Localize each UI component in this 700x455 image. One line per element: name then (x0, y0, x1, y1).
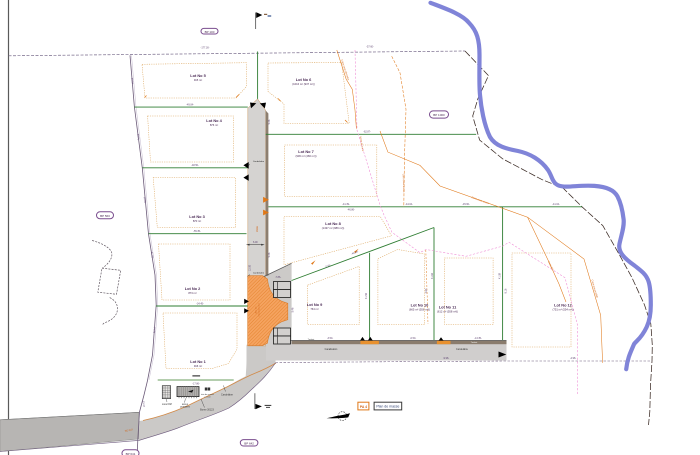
svg-text:41.02: 41.02 (150, 252, 154, 259)
svg-text:Lot No 6: Lot No 6 (296, 77, 312, 82)
svg-text:Borne 30123: Borne 30123 (200, 408, 214, 411)
svg-text:(665 m² (556 m²)): (665 m² (556 m²)) (409, 308, 430, 312)
svg-text:(1437 m² (989 m²)): (1437 m² (989 m²)) (322, 226, 345, 230)
svg-text:-57.60-: -57.60- (366, 46, 374, 49)
svg-text:Lot No 3: Lot No 3 (189, 214, 205, 219)
svg-text:5.46: 5.46 (268, 252, 271, 257)
svg-text:-46.86-: -46.86- (347, 209, 355, 212)
svg-text:74.75: 74.75 (152, 327, 156, 334)
svg-text:Lot No 4: Lot No 4 (206, 118, 222, 123)
svg-text:-4.98-: -4.98- (570, 357, 576, 360)
svg-text:41.09: 41.09 (498, 272, 501, 279)
svg-text:Lot No 2: Lot No 2 (185, 286, 201, 291)
svg-text:-34.45-: -34.45- (196, 302, 204, 305)
svg-text:764 m²: 764 m² (310, 307, 318, 311)
svg-text:-48.50-: -48.50- (191, 164, 199, 167)
svg-text:4.63: 4.63 (425, 288, 428, 293)
svg-text:-62.87-: -62.87- (363, 131, 371, 134)
svg-text:50.04: 50.04 (130, 78, 134, 85)
svg-text:Lot No 10: Lot No 10 (411, 303, 429, 308)
svg-text:65.91: 65.91 (143, 197, 147, 204)
svg-text:Candelabre: Candelabre (253, 271, 265, 274)
svg-text:Aire de: Aire de (255, 306, 258, 314)
svg-text:-41.39-: -41.39- (342, 203, 350, 206)
svg-text:12.00: 12.00 (249, 264, 252, 271)
svg-text:retournement: retournement (258, 303, 261, 316)
svg-text:Lot No 9: Lot No 9 (307, 302, 323, 307)
svg-text:-17.86-: -17.86- (192, 383, 200, 386)
svg-text:-49.04-: -49.04- (186, 103, 194, 106)
svg-text:-0.50-: -0.50- (410, 337, 416, 340)
svg-text:-7.86-: -7.86- (275, 276, 281, 279)
svg-text:Lot No 12: Lot No 12 (554, 303, 573, 308)
svg-text:60.71: 60.71 (136, 134, 140, 141)
svg-text:a creer: a creer (204, 397, 211, 399)
svg-text:-45.60-: -45.60- (462, 203, 470, 206)
svg-text:(751 m² (554 m²)): (751 m² (554 m²)) (552, 308, 573, 312)
svg-text:Plan de masse: Plan de masse (376, 405, 399, 409)
svg-text:-41.04-: -41.04- (552, 203, 560, 206)
svg-text:(936 m² (466 m²)): (936 m² (466 m²)) (295, 154, 316, 158)
svg-text:6.00: 6.00 (253, 241, 258, 244)
svg-text:8.16: 8.16 (504, 288, 507, 293)
svg-text:Local OM: Local OM (162, 404, 172, 406)
svg-text:Lot No 5: Lot No 5 (190, 73, 206, 78)
svg-text:-55.35-: -55.35- (193, 230, 201, 233)
svg-text:-9.98-: -9.98- (443, 357, 449, 360)
svg-text:BP 560: BP 560 (100, 214, 110, 218)
svg-text:915 m²: 915 m² (194, 78, 202, 82)
svg-text:Lot No 8: Lot No 8 (325, 221, 341, 226)
svg-text:Lot No 11: Lot No 11 (439, 305, 457, 310)
svg-text:5.46: 5.46 (268, 119, 271, 124)
svg-text:Lot No 1: Lot No 1 (190, 359, 206, 364)
svg-text:873 m²: 873 m² (188, 291, 196, 295)
svg-text:BP 642: BP 642 (244, 442, 254, 446)
svg-text:Candelabre: Candelabre (253, 160, 265, 163)
svg-text:Lot No 7: Lot No 7 (298, 149, 314, 154)
svg-text:Voirie: Voirie (256, 225, 259, 232)
svg-text:876 m²: 876 m² (210, 123, 218, 127)
svg-text:870 m²: 870 m² (193, 219, 201, 223)
svg-text:-3.50-: -3.50- (327, 337, 333, 340)
svg-text:Trottoir: Trottoir (471, 341, 478, 344)
svg-text:pompiers: pompiers (180, 405, 190, 408)
svg-text:-177.30-: -177.30- (201, 47, 210, 50)
svg-text:PA 4: PA 4 (360, 405, 367, 409)
svg-text:Canalisation: Canalisation (325, 348, 338, 351)
svg-text:Candelabre: Candelabre (456, 348, 469, 351)
svg-text:5.46: 5.46 (292, 307, 295, 312)
svg-text:916 m²: 916 m² (194, 364, 202, 368)
svg-text:(612 m² (558 m²)): (612 m² (558 m²)) (437, 310, 458, 314)
svg-text:(1016 m² (937 m²)): (1016 m² (937 m²)) (292, 82, 315, 86)
svg-text:41.63: 41.63 (431, 272, 434, 279)
svg-text:BP 100: BP 100 (205, 30, 215, 34)
svg-text:41.50: 41.50 (365, 292, 368, 299)
svg-text:Trottoir: Trottoir (308, 338, 315, 341)
svg-text:Candelabre: Candelabre (221, 394, 234, 397)
svg-text:BP 1000: BP 1000 (433, 113, 445, 117)
svg-text:-13.35-: -13.35- (474, 337, 482, 340)
svg-text:-44.04-: -44.04- (405, 203, 413, 206)
